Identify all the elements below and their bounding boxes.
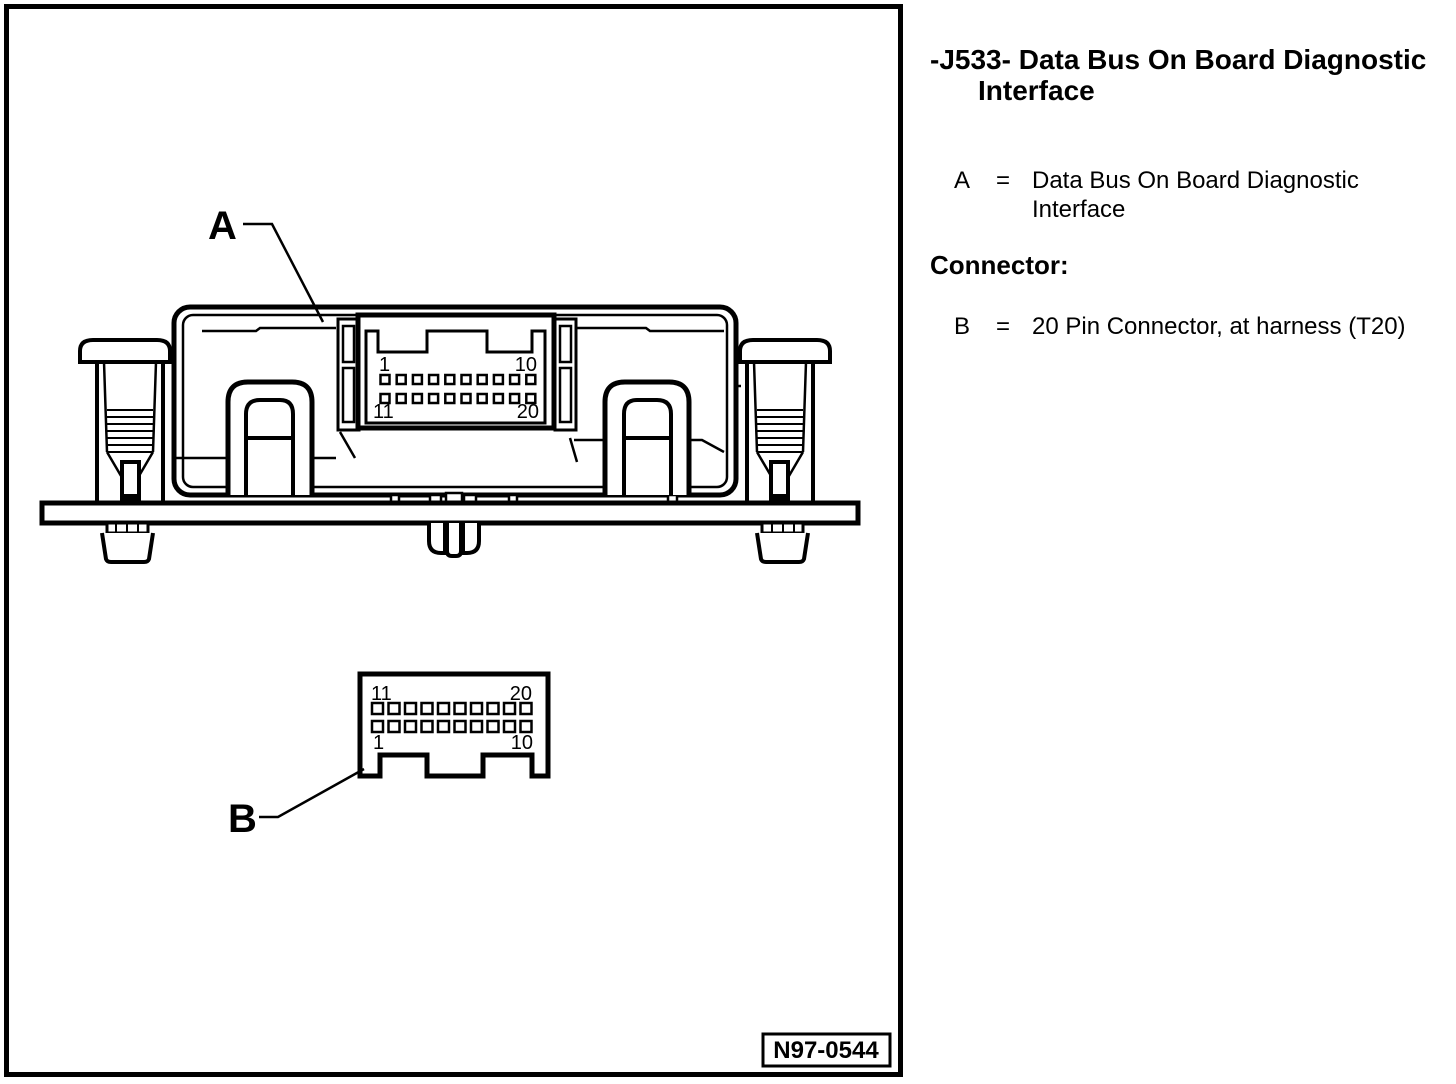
drawing-number-badge: N97-0544 [763, 1034, 890, 1066]
latch-post [80, 340, 170, 503]
callout-a-label: A [208, 204, 237, 248]
pin-label: 11 [373, 401, 394, 423]
pin-label: 10 [515, 354, 537, 376]
legend-item-b-key: B [954, 312, 996, 341]
drawing-number: N97-0544 [773, 1037, 879, 1064]
legend-item-b: B = 20 Pin Connector, at harness (T20) [954, 312, 1406, 341]
pin-label: 20 [510, 683, 532, 705]
legend: -J533- Data Bus On Board Diagnostic Inte… [930, 44, 1456, 106]
callout-a: A [208, 204, 323, 322]
legend-item-a-key: A [954, 166, 996, 224]
callout-b-label: B [228, 797, 257, 841]
callout-b-leader-line [259, 769, 364, 817]
module-socket: 1 10 11 20 [358, 315, 554, 428]
equals-sign: = [996, 166, 1032, 224]
legend-title: -J533- Data Bus On Board Diagnostic Inte… [930, 44, 1456, 106]
equals-sign: = [996, 312, 1032, 341]
retaining-clip [228, 382, 312, 495]
center-stub [429, 523, 479, 556]
pin-label: 1 [379, 354, 390, 376]
legend-item-b-description: 20 Pin Connector, at harness (T20) [1032, 312, 1406, 341]
pin-label: 11 [371, 683, 392, 705]
harness-connector-drawing: 11 20 1 10 [360, 674, 548, 776]
pin-label: 10 [511, 732, 533, 754]
pin-label: 20 [517, 401, 539, 423]
legend-item-a-description: Data Bus On Board Diagnostic Interface [1032, 166, 1359, 224]
mounting-plate [42, 503, 858, 523]
pin-label: 1 [373, 732, 384, 754]
callout-b: B [228, 769, 364, 841]
module-drawing: 1 10 11 20 [42, 307, 858, 562]
figure-canvas: 1 10 11 20 A [0, 0, 910, 1084]
mounting-foot [102, 523, 153, 562]
legend-item-a: A = Data Bus On Board Diagnostic Interfa… [954, 166, 1359, 224]
connector-section-heading: Connector: [930, 250, 1069, 281]
